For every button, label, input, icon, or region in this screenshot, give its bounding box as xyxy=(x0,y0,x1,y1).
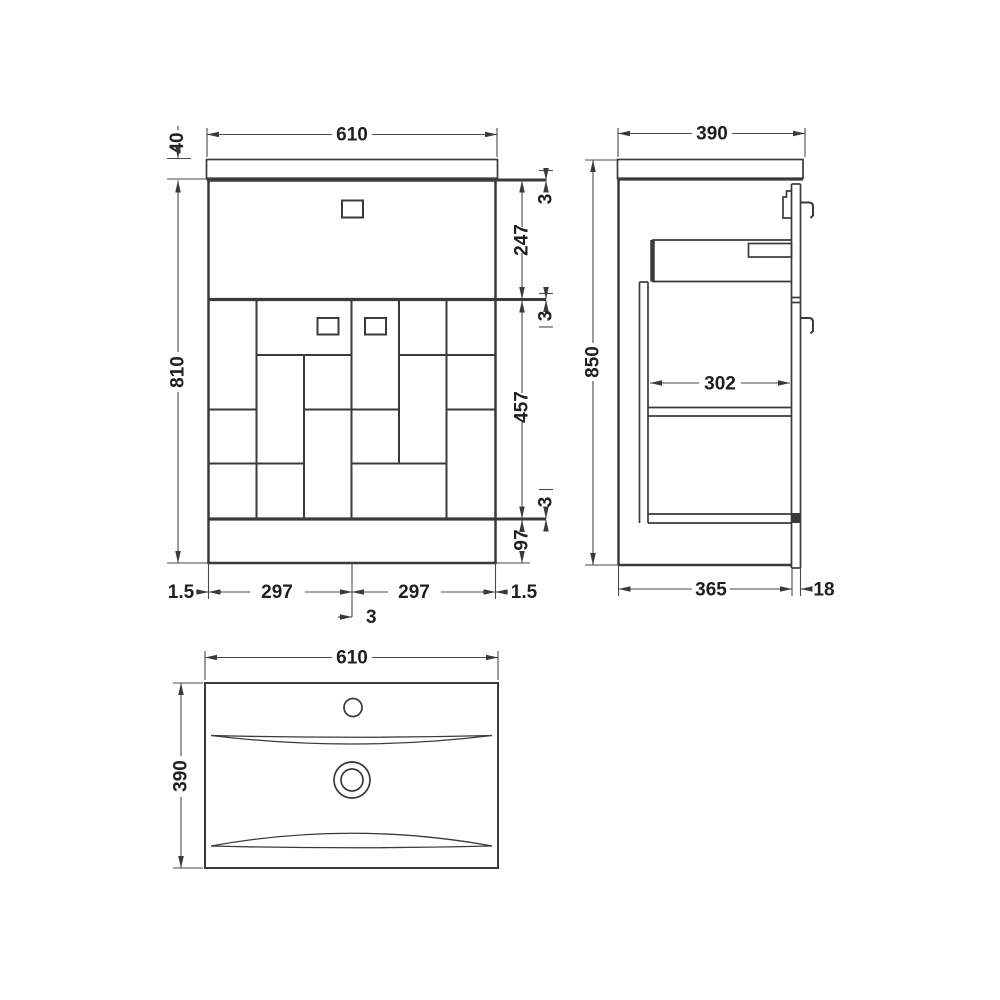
front-dim-width: 610 xyxy=(207,125,497,158)
front-gap-middle-label: 3 xyxy=(536,311,557,322)
door-pattern-grid xyxy=(209,301,496,518)
front-door-center-gap-label: 3 xyxy=(366,607,377,628)
side-dim-internal: 302 xyxy=(650,374,790,395)
front-gap-top-label: 3 xyxy=(536,194,557,205)
side-total-height-label: 850 xyxy=(583,346,604,378)
front-edge-right-label: 1.5 xyxy=(511,582,538,603)
side-door-thickness-label: 18 xyxy=(813,580,834,601)
side-body-depth-label: 365 xyxy=(695,580,727,601)
side-worktop xyxy=(618,160,804,179)
side-door-panel xyxy=(792,184,801,568)
front-dim-right: 3 247 3 457 3 97 xyxy=(496,171,557,564)
front-dim-bottom: 1.5 297 297 1.5 3 xyxy=(168,563,538,628)
side-depth-label: 390 xyxy=(696,124,728,145)
front-drawer-height-label: 247 xyxy=(512,224,533,256)
side-dim-height: 850 xyxy=(583,160,619,565)
front-door-right-width-label: 297 xyxy=(398,582,430,603)
front-dim-left: 40 810 xyxy=(167,126,208,563)
side-hinge-hook-bottom xyxy=(801,318,814,334)
front-worktop xyxy=(207,160,498,179)
front-width-label: 610 xyxy=(336,125,368,146)
side-dim-bottom: 365 18 xyxy=(619,565,835,601)
side-bottom-hinge-block xyxy=(792,513,802,523)
side-drawer-runner xyxy=(749,244,792,258)
side-dim-depth: 390 xyxy=(618,124,805,158)
drawer-handle xyxy=(342,201,363,218)
door-handle-left xyxy=(318,318,339,335)
vanity-technical-drawing: 610 40 810 3 247 xyxy=(0,0,1000,1000)
side-section-view: 302 390 850 365 18 xyxy=(583,124,835,601)
basin-plan-view: 610 390 xyxy=(171,648,499,869)
front-worktop-thickness-label: 40 xyxy=(167,132,188,153)
top-depth-label: 390 xyxy=(171,760,192,792)
front-gap-lower-label: 3 xyxy=(536,497,557,508)
side-interior xyxy=(640,282,802,523)
front-door-left-width-label: 297 xyxy=(261,582,293,603)
front-plinth-height-label: 97 xyxy=(512,529,533,550)
basin-front-edge-curve xyxy=(211,833,492,848)
basin-back-edge-curve xyxy=(211,736,492,745)
door-handle-right xyxy=(365,318,386,335)
top-dim-width: 610 xyxy=(205,648,498,681)
front-elevation-view: 610 40 810 3 247 xyxy=(167,125,557,629)
drawing-canvas: 610 40 810 3 247 xyxy=(0,0,1000,1000)
front-cabinet-height-label: 810 xyxy=(168,356,189,388)
tap-hole xyxy=(344,699,362,717)
top-width-label: 610 xyxy=(336,648,368,669)
side-hinge-plate xyxy=(783,191,792,218)
front-doors-height-label: 457 xyxy=(512,391,533,423)
side-drawer-box xyxy=(652,240,792,282)
waste-hole xyxy=(334,762,370,798)
top-dim-depth: 390 xyxy=(171,683,204,868)
side-hinge-hook-top xyxy=(801,203,814,219)
side-internal-depth-label: 302 xyxy=(704,374,736,395)
front-edge-left-label: 1.5 xyxy=(168,582,195,603)
